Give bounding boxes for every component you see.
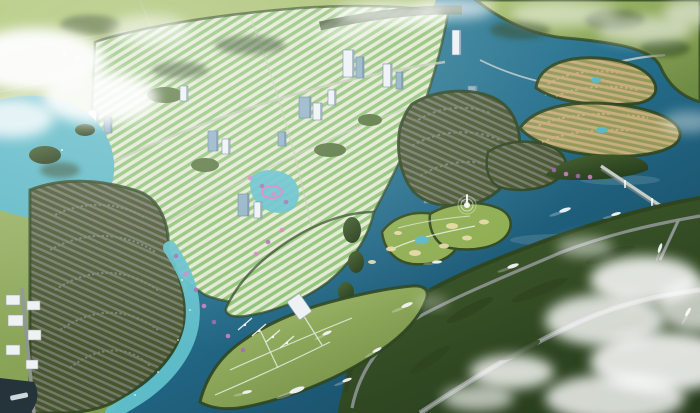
atmospheric-haze — [0, 0, 700, 413]
aerial-render-image — [0, 0, 700, 413]
masterplan-scene — [0, 0, 700, 413]
